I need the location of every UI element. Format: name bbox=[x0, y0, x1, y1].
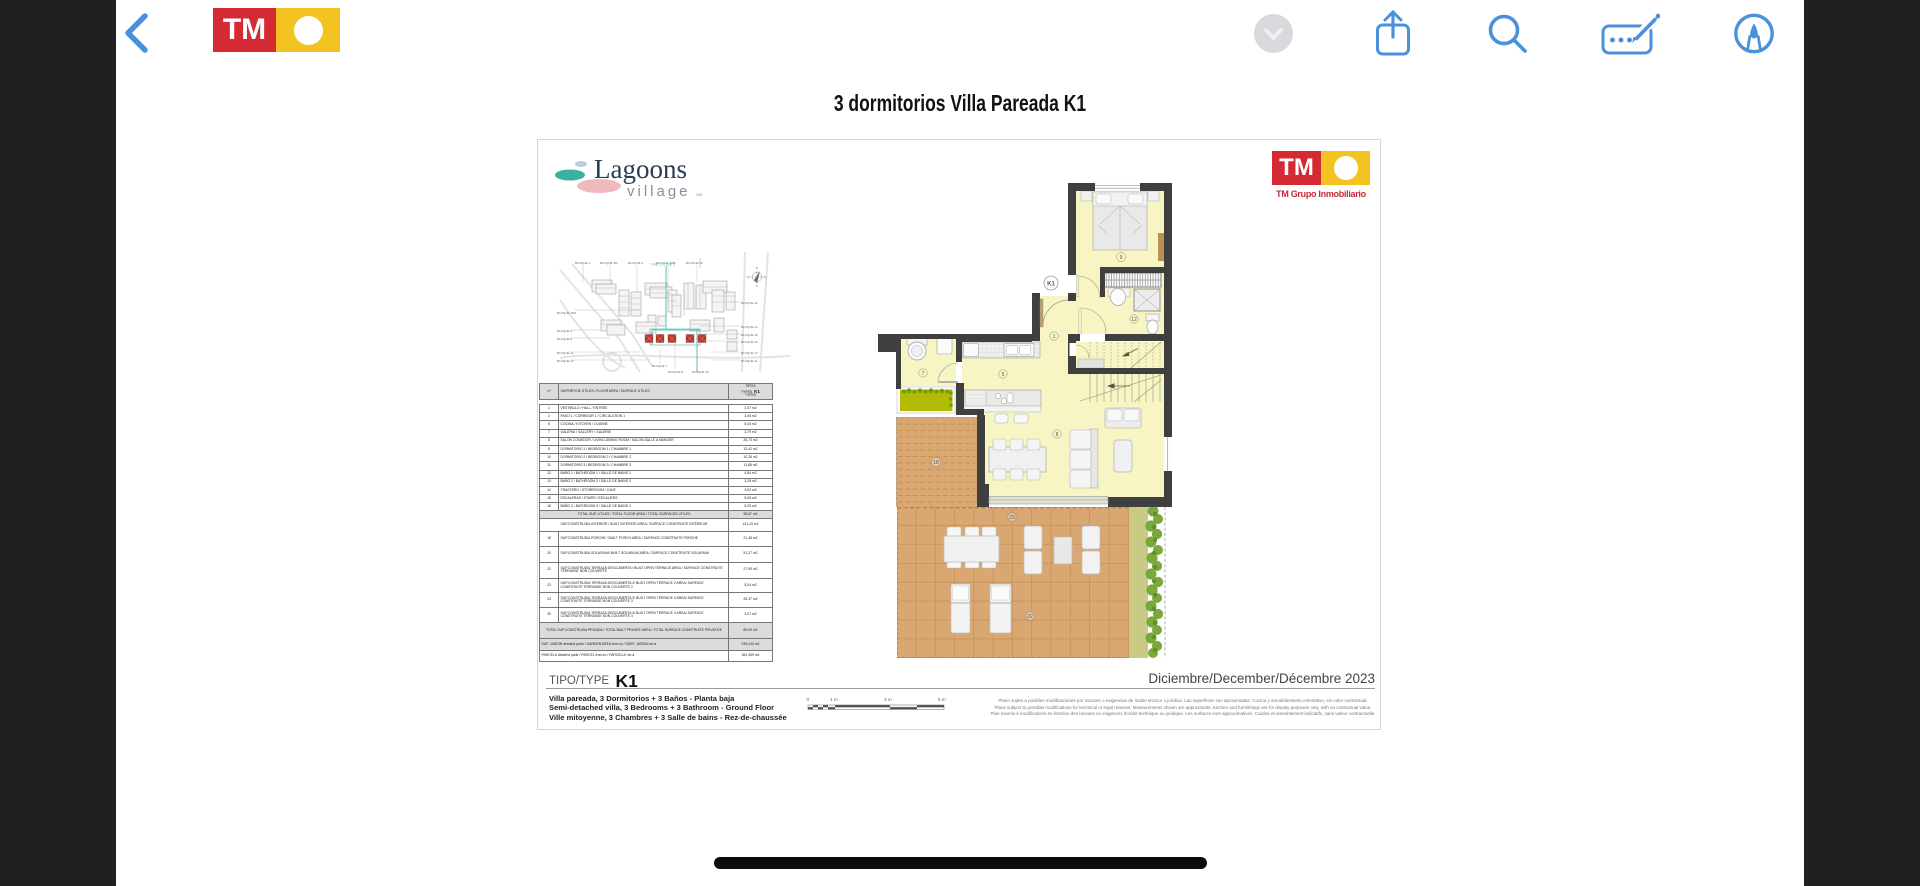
svg-text:BLOQUE 15: BLOQUE 15 bbox=[741, 333, 758, 337]
svg-text:0: 0 bbox=[807, 697, 810, 702]
svg-text:BLOQUE 4: BLOQUE 4 bbox=[557, 329, 572, 333]
svg-text:1: 1 bbox=[1053, 334, 1056, 340]
svg-text:E: E bbox=[765, 275, 767, 279]
svg-text:3 m: 3 m bbox=[884, 697, 892, 702]
svg-text:K1: K1 bbox=[1047, 281, 1055, 287]
svg-text:BLOQUE 3M: BLOQUE 3M bbox=[600, 261, 618, 265]
svg-text:BLOQUE 11: BLOQUE 11 bbox=[557, 351, 574, 355]
svg-text:BLOQUE 15M: BLOQUE 15M bbox=[557, 311, 577, 315]
svg-text:BLOQUE 7: BLOQUE 7 bbox=[652, 364, 667, 368]
svg-text:12: 12 bbox=[1131, 317, 1137, 323]
svg-text:W: W bbox=[747, 275, 750, 279]
svg-text:BLOQUE 12: BLOQUE 12 bbox=[741, 301, 758, 305]
svg-text:18: 18 bbox=[933, 460, 939, 466]
svg-text:BLOQUE 10: BLOQUE 10 bbox=[692, 370, 709, 374]
svg-text:BLOQUE 13: BLOQUE 13 bbox=[557, 359, 574, 363]
svg-text:9: 9 bbox=[1120, 255, 1123, 261]
svg-text:BLOQUE 6: BLOQUE 6 bbox=[557, 337, 572, 341]
svg-text:N: N bbox=[756, 266, 758, 270]
svg-text:BLOQUE 17: BLOQUE 17 bbox=[741, 351, 758, 355]
svg-text:BLOQUE 12: BLOQUE 12 bbox=[686, 261, 703, 265]
svg-text:23: 23 bbox=[1009, 515, 1015, 521]
svg-text:S: S bbox=[756, 284, 758, 288]
svg-text:5: 5 bbox=[1002, 372, 1005, 378]
svg-text:1 m: 1 m bbox=[830, 697, 838, 702]
svg-text:BLOQUE 8: BLOQUE 8 bbox=[668, 370, 683, 374]
svg-text:BLOQUE 1MB: BLOQUE 1MB bbox=[656, 261, 676, 265]
svg-text:BLOQUE 2: BLOQUE 2 bbox=[628, 261, 643, 265]
svg-text:BLOQUE 11: BLOQUE 11 bbox=[741, 359, 758, 363]
svg-text:BLOQUE 1: BLOQUE 1 bbox=[575, 261, 590, 265]
svg-text:8: 8 bbox=[1056, 432, 1059, 438]
svg-text:BLOQUE 14: BLOQUE 14 bbox=[741, 325, 758, 329]
svg-text:village: village bbox=[627, 183, 691, 200]
svg-text:5 m: 5 m bbox=[938, 697, 946, 702]
svg-text:BLOQUE 16: BLOQUE 16 bbox=[741, 340, 758, 344]
svg-text:22: 22 bbox=[1027, 614, 1033, 620]
svg-text:7: 7 bbox=[922, 371, 925, 377]
svg-text:Lagoons: Lagoons bbox=[594, 154, 687, 184]
svg-text:SM: SM bbox=[696, 192, 702, 197]
